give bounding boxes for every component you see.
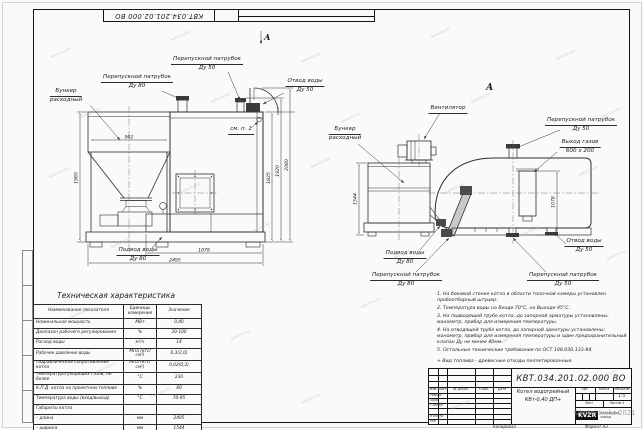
table-row: Рабочее давление водыМПа (кгс/см²)0,3(3,… bbox=[34, 349, 202, 361]
table-row: Температура уходящих газов, не более°С23… bbox=[34, 372, 202, 384]
tb-mass-label: Масса bbox=[595, 388, 613, 392]
spec-header-row: Наименование показателя Единицы измерени… bbox=[34, 305, 202, 319]
label-water-inlet-du80-side: Подвод воды Ду 80 bbox=[384, 250, 427, 266]
fuel-footnote: + Вид топлива - древесные отходы пеллети… bbox=[437, 359, 629, 365]
svg-text:1078: 1078 bbox=[551, 196, 557, 208]
tb-header-podp: Подп. bbox=[475, 388, 493, 392]
svg-text:2495: 2495 bbox=[169, 257, 181, 263]
tb-scale-label: Масштаб bbox=[613, 388, 631, 392]
scale-value: 1:5 bbox=[613, 393, 631, 400]
spec-table-title: Техническая характеристика bbox=[57, 291, 175, 300]
tb-role-approved: Утв. bbox=[430, 419, 474, 424]
doc-number: КВТ.034.201.02.000 ВО bbox=[511, 369, 631, 387]
svg-text:1078: 1078 bbox=[198, 247, 210, 253]
top-title-strip: КВТ.034.201.02.000 ВО bbox=[103, 9, 375, 22]
svg-text:1960: 1960 bbox=[74, 172, 80, 184]
table-row: – ширинамм1544 bbox=[34, 424, 202, 430]
label-see-note-1: см. п. 1 bbox=[228, 126, 254, 135]
front-view bbox=[86, 88, 278, 250]
spec-header-unit: Единицы измерения bbox=[124, 305, 157, 319]
label-fan: Вентилятор bbox=[428, 105, 467, 114]
tb-role-tcontrol: Т.контр. bbox=[430, 403, 474, 408]
front-dimension-texts: 902 1960 1078 2495 1825 1920 2080 bbox=[74, 134, 290, 263]
label-bypass-pipe-du80-front: Перепускной патрубок Ду 80 bbox=[101, 74, 173, 90]
tb-lit-label: Лит. bbox=[575, 388, 595, 392]
technical-notes: 1. На боковой стенке котла в области топ… bbox=[437, 292, 629, 365]
tb-header-docnum: № докум. bbox=[447, 388, 475, 392]
svg-text:1825: 1825 bbox=[266, 172, 272, 184]
spec-header-value: Значение bbox=[157, 305, 202, 319]
product-name: Котел водогрейный КВт-0,40 ДП+ bbox=[511, 389, 575, 422]
drawing-sheet: КВТ.034.201.02.000 ВО bbox=[0, 0, 644, 430]
label-feed-hopper-side: Бункер расходный bbox=[329, 126, 361, 142]
label-water-outlet-du50-side: Отвод воды Ду 50 bbox=[564, 238, 603, 254]
table-row: Диапазон рабочего регулирования%30-100 bbox=[34, 329, 202, 339]
tb-sheets-count: Листов 1 bbox=[603, 400, 631, 407]
front-dimensions bbox=[77, 88, 295, 266]
table-row: – длинамм2495 bbox=[34, 414, 202, 424]
side-dimension-texts: 1544 1078 bbox=[353, 193, 557, 208]
table-row: Температура воды (вход/выход)°С70-95 bbox=[34, 394, 202, 404]
tb-header-list: Лист bbox=[438, 388, 447, 392]
copyright-watermark: ©kotel-kv.kz 2021 bbox=[573, 409, 635, 417]
note-4: 4. На отводящей трубе котла, до запорной… bbox=[437, 328, 629, 347]
tb-header-data: Дата bbox=[493, 388, 511, 392]
note-5: 5. Остальные технические требования по О… bbox=[437, 348, 629, 354]
label-water-inlet-du80-front: Подвод воды Ду 80 bbox=[117, 247, 160, 263]
note-3: 3. На подводящей трубе котла, до запорно… bbox=[437, 314, 629, 326]
table-row: К.П.Д. котла на проектном топливе%80 bbox=[34, 384, 202, 394]
label-bypass-pipe-du50-top-side: Перепускной патрубок Ду 50 bbox=[545, 117, 617, 133]
label-bypass-pipe-du80-side: Перепускной патрубок Ду 80 bbox=[370, 272, 442, 288]
top-doc-number: КВТ.034.201.02.000 ВО bbox=[104, 10, 214, 21]
table-row: Номинальная мощностьМВт0,40 bbox=[34, 319, 202, 329]
note-1: 1. На боковой стенке котла в области топ… bbox=[437, 292, 629, 304]
svg-text:2080: 2080 bbox=[284, 159, 290, 171]
tb-sheet-label: Лист bbox=[575, 400, 603, 407]
table-row: Гидравлическое сопротивление котлаМПа (к… bbox=[34, 360, 202, 372]
table-row: Габариты котла bbox=[34, 404, 202, 414]
label-bypass-pipe-du50-front: Перепускной патрубок Ду 50 bbox=[171, 56, 243, 72]
tb-header-izm: Изм. bbox=[429, 388, 438, 392]
svg-text:1920: 1920 bbox=[275, 165, 281, 177]
spec-table: Наименование показателя Единицы измерени… bbox=[33, 304, 202, 430]
label-gas-outlet: Выход газов 600 х 200 bbox=[560, 139, 601, 155]
svg-text:1544: 1544 bbox=[353, 193, 359, 205]
note-2: 2. Температура воды на Входе 70°С, на Вы… bbox=[437, 306, 629, 312]
label-bypass-pipe-du50-bottom-side: Перепускной патрубок Ду 50 bbox=[527, 272, 599, 288]
svg-text:902: 902 bbox=[125, 134, 134, 140]
spec-header-name: Наименование показателя bbox=[34, 305, 124, 319]
label-feed-hopper-front: Бункер расходный bbox=[50, 88, 82, 104]
side-view-label-a: А bbox=[486, 83, 493, 93]
section-arrow-label-a: А bbox=[264, 32, 271, 42]
table-row: Расход водым³/ч14 bbox=[34, 339, 202, 349]
label-water-outlet-du50-front: Отвод воды Ду 50 bbox=[285, 78, 324, 94]
